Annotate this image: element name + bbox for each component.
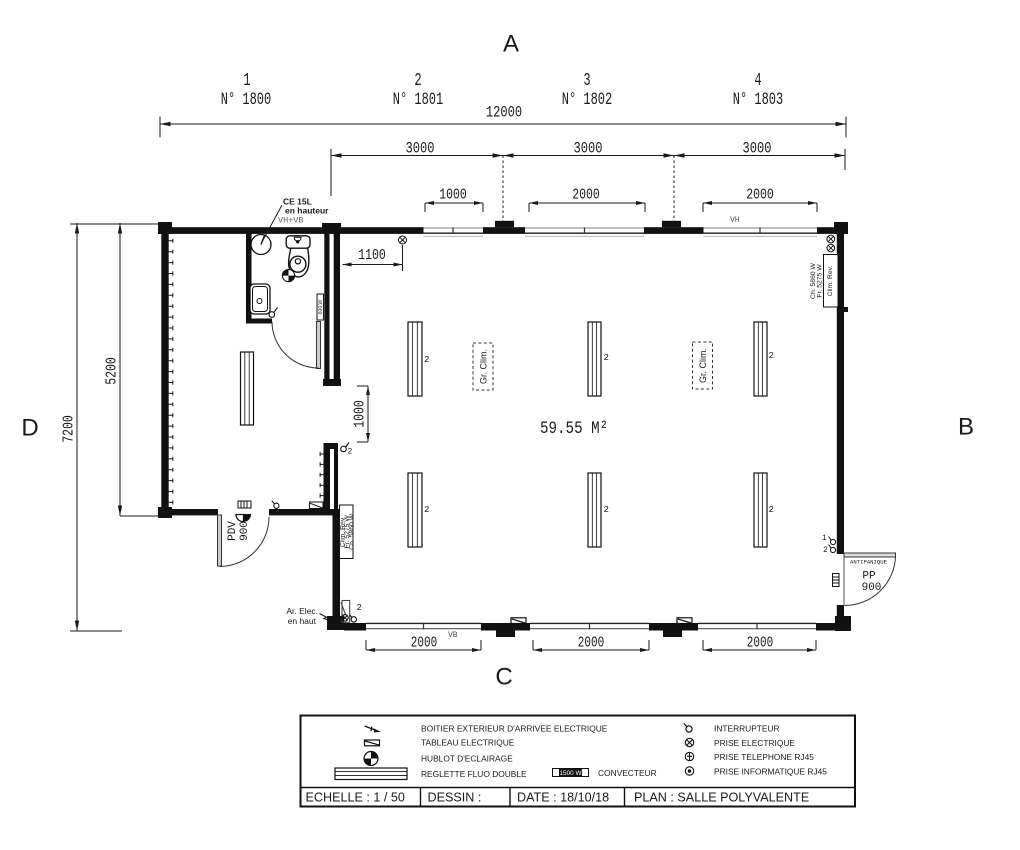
svg-text:N° 1803: N° 1803	[733, 91, 783, 110]
svg-text:N° 1800: N° 1800	[221, 91, 271, 110]
svg-text:BOITIER EXTERIEUR D'ARRIVEE EL: BOITIER EXTERIEUR D'ARRIVEE ELECTRIQUE	[421, 724, 608, 734]
svg-text:VH+VB: VH+VB	[278, 216, 304, 226]
svg-text:2: 2	[424, 505, 429, 515]
svg-text:DATE : 18/10/18: DATE : 18/10/18	[517, 791, 609, 805]
svg-text:Fr. 5275 W: Fr. 5275 W	[817, 264, 824, 298]
svg-text:2: 2	[823, 546, 828, 555]
svg-text:ANTIPANIQUE: ANTIPANIQUE	[850, 559, 888, 566]
svg-text:2000: 2000	[411, 634, 437, 651]
svg-text:1100: 1100	[358, 248, 386, 265]
svg-text:N° 1802: N° 1802	[562, 91, 612, 110]
svg-text:PRISE ELECTRIQUE: PRISE ELECTRIQUE	[714, 738, 795, 748]
svg-text:Ch. 5860 W: Ch. 5860 W	[810, 262, 817, 298]
svg-text:12000: 12000	[486, 104, 522, 122]
svg-text:VB: VB	[448, 631, 458, 640]
svg-text:4: 4	[754, 70, 761, 91]
svg-text:900: 900	[239, 521, 251, 541]
svg-text:900: 900	[862, 582, 882, 594]
svg-text:en hauteur: en hauteur	[285, 206, 329, 216]
svg-text:TABLEAU ELECTRIQUE: TABLEAU ELECTRIQUE	[421, 738, 515, 748]
svg-text:DESSIN :: DESSIN :	[428, 791, 482, 805]
svg-text:HUBLOT D'ECLAIRAGE: HUBLOT D'ECLAIRAGE	[421, 754, 513, 764]
svg-text:PRISE INFORMATIQUE RJ45: PRISE INFORMATIQUE RJ45	[714, 767, 827, 777]
svg-text:3: 3	[583, 70, 590, 91]
svg-text:A: A	[503, 31, 519, 58]
svg-text:REGLETTE FLUO DOUBLE: REGLETTE FLUO DOUBLE	[421, 769, 527, 779]
svg-text:PLAN : SALLE POLYVALENTE: PLAN : SALLE POLYVALENTE	[634, 791, 809, 805]
svg-text:5200: 5200	[104, 357, 121, 385]
svg-text:CONVECTEUR: CONVECTEUR	[598, 768, 657, 778]
svg-text:2: 2	[357, 603, 362, 613]
svg-text:2: 2	[769, 351, 774, 361]
svg-text:Gr. Clim.: Gr. Clim.	[479, 349, 489, 384]
svg-text:7200: 7200	[61, 415, 78, 443]
svg-text:PP: PP	[862, 571, 876, 583]
svg-text:Clim. Rev.: Clim. Rev.	[827, 265, 834, 296]
svg-text:1: 1	[243, 70, 250, 91]
svg-text:2: 2	[604, 353, 609, 363]
svg-text:2000: 2000	[572, 187, 600, 204]
svg-text:3000: 3000	[574, 140, 603, 158]
svg-text:PDV: PDV	[227, 521, 239, 541]
svg-text:2: 2	[424, 355, 429, 365]
svg-text:3000: 3000	[743, 140, 772, 158]
svg-text:VH: VH	[730, 216, 740, 225]
svg-text:D: D	[21, 415, 38, 442]
svg-text:Ch. 5860 W: Ch. 5860 W	[349, 513, 356, 549]
svg-text:INTERRUPTEUR: INTERRUPTEUR	[714, 724, 780, 734]
svg-text:Gr. Clim.: Gr. Clim.	[698, 348, 708, 383]
svg-text:2: 2	[769, 505, 774, 515]
svg-text:600 W: 600 W	[318, 299, 324, 314]
svg-text:1500 W: 1500 W	[559, 770, 582, 777]
svg-text:2: 2	[414, 70, 421, 91]
svg-text:3000: 3000	[406, 140, 435, 158]
svg-text:C: C	[495, 664, 512, 691]
svg-text:59.55 M²: 59.55 M²	[540, 419, 608, 439]
svg-text:PRISE TELEPHONE RJ45: PRISE TELEPHONE RJ45	[714, 752, 814, 762]
svg-text:N° 1801: N° 1801	[393, 91, 443, 110]
svg-text:B: B	[958, 414, 974, 441]
svg-text:2: 2	[604, 505, 609, 515]
svg-text:Ar. Elec.: Ar. Elec.	[286, 606, 318, 616]
svg-text:2000: 2000	[747, 634, 773, 651]
svg-text:2000: 2000	[746, 187, 774, 204]
svg-text:ECHELLE : 1 / 50: ECHELLE : 1 / 50	[306, 791, 405, 805]
svg-text:2000: 2000	[578, 634, 604, 651]
svg-text:1000: 1000	[352, 400, 369, 428]
svg-text:en haut: en haut	[288, 616, 317, 626]
svg-text:2: 2	[348, 448, 353, 457]
svg-text:1: 1	[822, 534, 827, 543]
svg-text:1000: 1000	[439, 187, 467, 204]
